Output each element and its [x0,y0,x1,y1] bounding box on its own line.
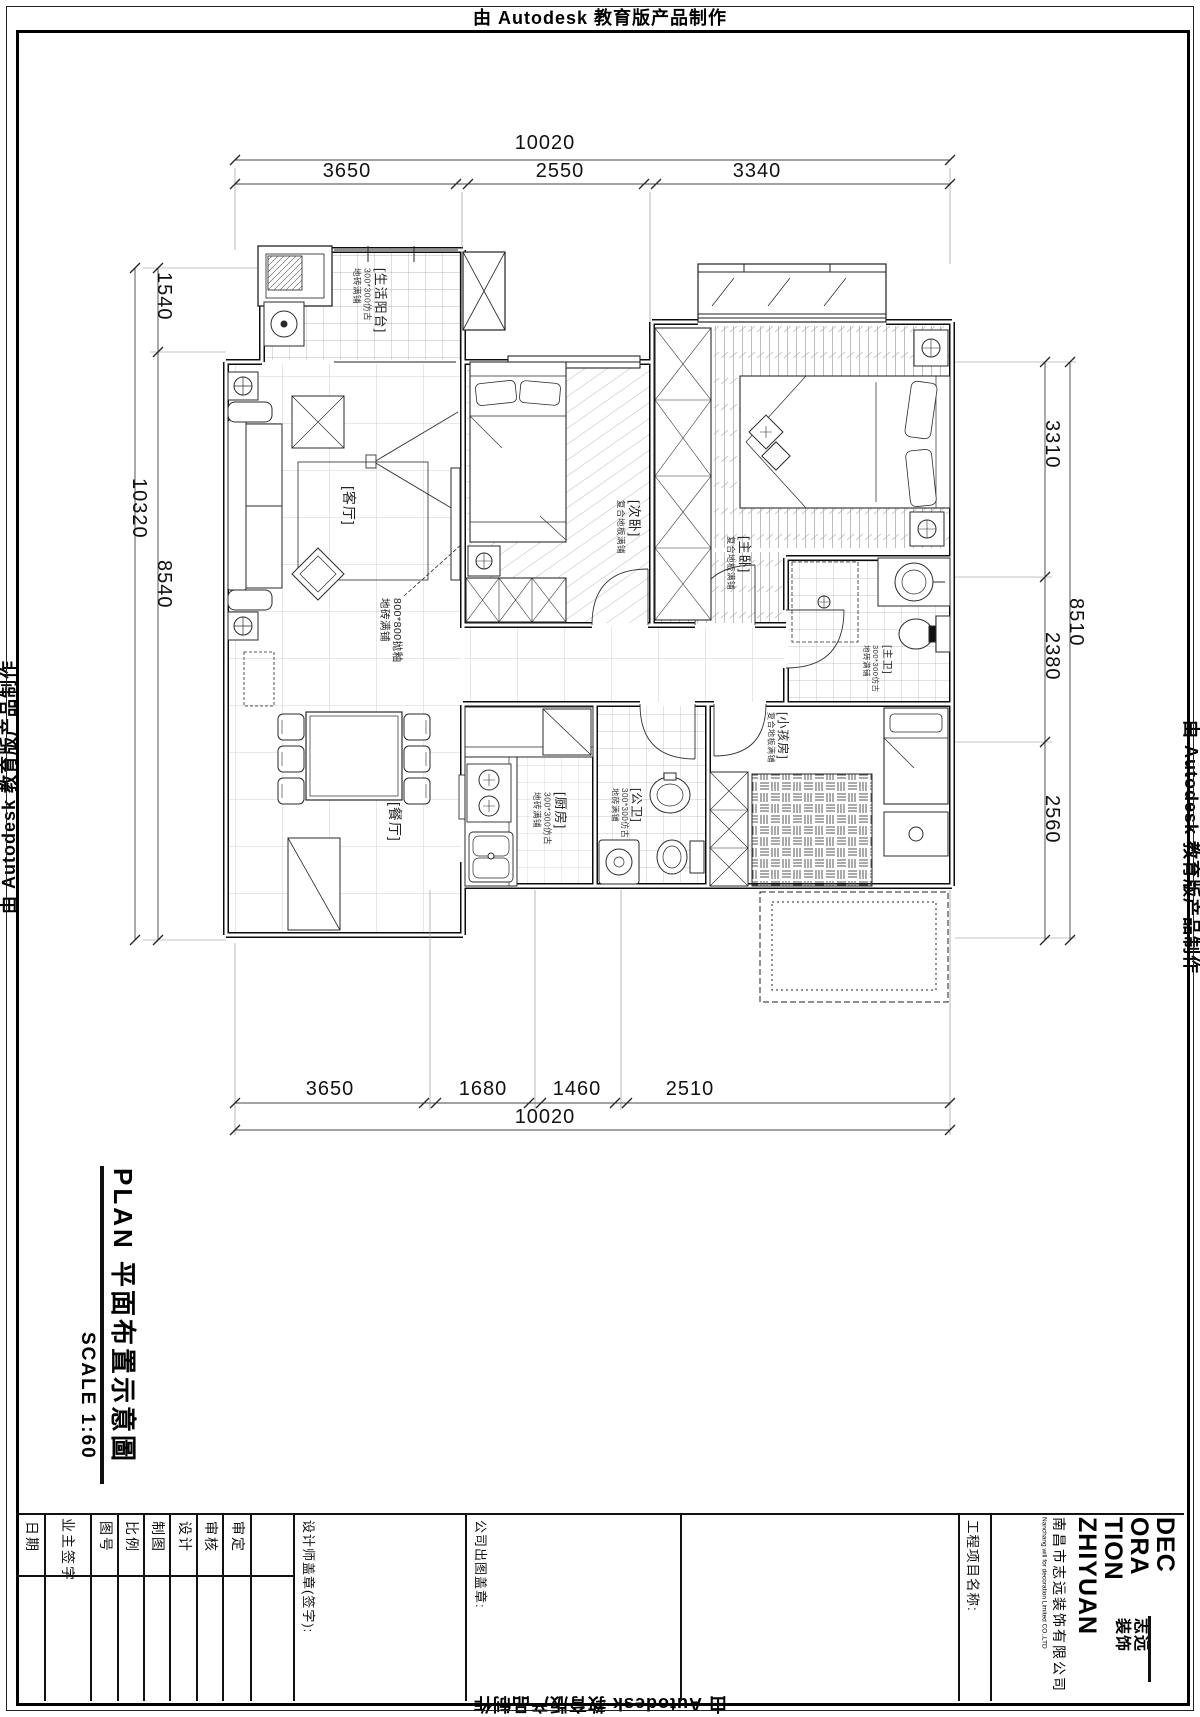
titleblock-divider [44,1513,46,1701]
project-name-label: 工程项目名称: [964,1520,984,1612]
titleblock-divider [250,1513,252,1701]
titleblock-divider [196,1513,198,1701]
field-design: 设计 [175,1521,195,1553]
room-label-kitchen: [厨房] 300*300仿古 地砖满铺 [532,792,568,845]
dim-left-seg: 8540 [152,560,175,609]
dim-bottom-seg: 3650 [306,1078,355,1101]
field-owner-sign: 业主签字 [58,1518,78,1582]
floor-note: 800*800抛釉 地砖满铺 [378,598,403,663]
company-logo: DEC ORA TION ZHIYUAN 南昌市志远装饰有限公司 Nanchan… [1000,1517,1178,1699]
field-ratio: 比例 [122,1521,142,1553]
dim-right-seg: 2380 [1040,632,1063,681]
room-label-living: [客厅] [340,486,357,526]
titleblock-divider [958,1513,960,1701]
titleblock-divider [143,1513,145,1701]
dim-top-seg: 2550 [536,160,585,183]
room-label-master-bath: [主卫] 300*300仿古 地砖满铺 [862,645,892,692]
field-number: 图号 [96,1521,116,1553]
logo-word: ZHIYUAN [1074,1517,1100,1699]
titleblock-divider [117,1513,119,1701]
title-underline [100,1166,104,1484]
dim-left-total: 10320 [127,478,150,539]
room-label-master: [主卧] 复合地板满铺 [726,536,752,590]
dim-bottom-seg: 1680 [459,1078,508,1101]
field-date: 日期 [22,1521,42,1553]
room-label-bedroom2: [次卧] 复合地板满铺 [616,500,642,554]
company-name-cn: 南昌市志远装饰有限公司 [1048,1517,1068,1699]
dim-left-seg: 1540 [152,272,175,321]
drawing-sheet: 由 Autodesk 教育版产品制作 由 Autodesk 教育版产品制作 由 … [0,0,1200,1717]
designer-stamp-label: 设计师盖章(签字): [300,1520,319,1633]
room-label-dining: [餐厅] [386,802,403,842]
dim-bottom-seg: 1460 [553,1078,602,1101]
sheet-scale: SCALE 1:60 [76,1332,98,1460]
room-label-balcony: [生活阳台] 300*300仿古 地砖满铺 [352,268,388,333]
dim-bottom-seg: 2510 [666,1078,715,1101]
dim-top-seg: 3340 [733,160,782,183]
titleblock-divider [465,1513,467,1701]
dim-bottom-total: 10020 [515,1106,576,1129]
field-approve: 审定 [228,1521,248,1553]
titleblock-divider [293,1513,295,1701]
dim-right-seg: 3310 [1040,420,1063,469]
company-stamp-label: 公司出图盖章: [472,1520,491,1609]
titleblock-divider [680,1513,682,1701]
titleblock-divider [169,1513,171,1701]
dim-right-seg: 2560 [1040,795,1063,844]
titleblock-divider [222,1513,224,1701]
logo-word: TION [1100,1517,1126,1699]
sheet-title: PLAN 平面布置示意圖 [106,1168,143,1464]
sheet-border-inner [16,30,1190,1706]
titleblock-divider [990,1513,992,1701]
titleblock-divider [90,1513,92,1701]
field-draft: 制图 [148,1521,168,1553]
room-label-kids: [小孩房] 复合地板满铺 [766,712,790,763]
company-name-en: Nanchang will for decoration Limited CO.… [1039,1517,1048,1699]
titleblock-top-rule [16,1513,1184,1515]
room-label-bath2: [公卫] 300*300仿古 地砖满铺 [610,788,644,838]
dim-top-seg: 3650 [323,160,372,183]
field-check: 审核 [201,1521,221,1553]
dim-right-total: 8510 [1064,598,1087,647]
logo-seal-rule [1148,1616,1151,1682]
dim-top-total: 10020 [515,132,576,155]
logo-seal: 志远 装饰 [1112,1618,1149,1652]
logo-word: DEC [1152,1517,1178,1699]
